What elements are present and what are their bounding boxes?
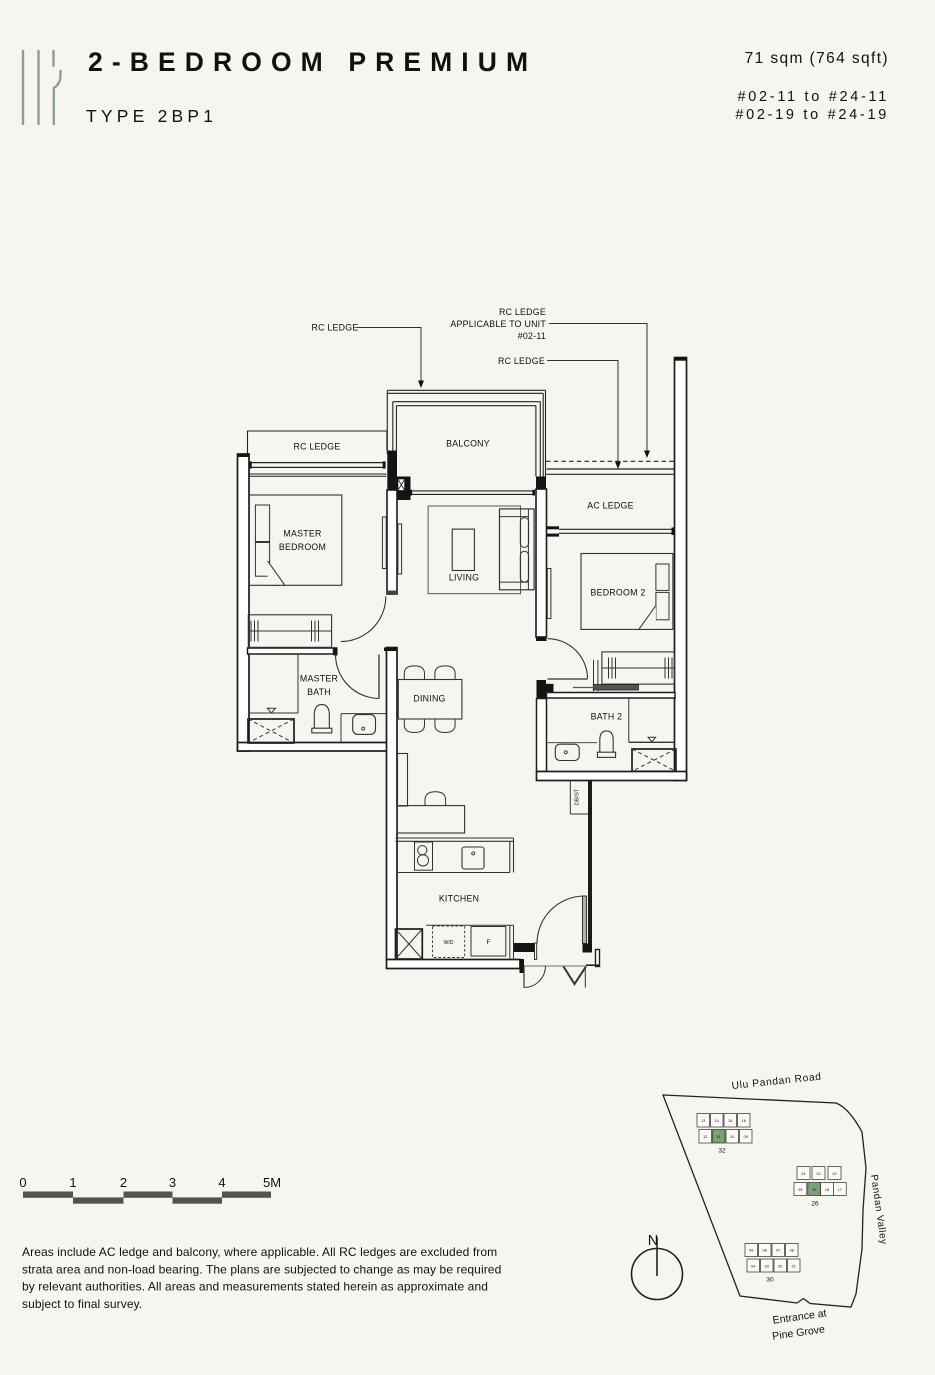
svg-text:15: 15 xyxy=(728,1119,732,1123)
svg-text:strata area and non-load beari: strata area and non-load bearing. The pl… xyxy=(22,1262,501,1276)
svg-text:subject to final survey.: subject to final survey. xyxy=(22,1297,142,1311)
svg-text:07: 07 xyxy=(776,1249,780,1253)
svg-text:APPLICABLE TO UNIT: APPLICABLE TO UNIT xyxy=(450,319,546,329)
svg-text:26: 26 xyxy=(811,1201,819,1208)
svg-text:16: 16 xyxy=(742,1119,746,1123)
svg-text:#02-11: #02-11 xyxy=(518,331,546,341)
svg-text:BATH 2: BATH 2 xyxy=(591,712,623,722)
svg-text:MASTER: MASTER xyxy=(300,674,338,684)
svg-text:19: 19 xyxy=(812,1188,816,1192)
svg-text:BATH: BATH xyxy=(307,687,331,697)
svg-text:BEDROOM 2: BEDROOM 2 xyxy=(590,588,645,598)
svg-text:03: 03 xyxy=(765,1265,769,1269)
svg-text:32: 32 xyxy=(718,1148,726,1155)
svg-text:DINING: DINING xyxy=(413,694,445,704)
svg-text:06: 06 xyxy=(763,1249,767,1253)
svg-text:by relevant authorities. All a: by relevant authorities. All areas and m… xyxy=(22,1280,488,1294)
svg-text:11: 11 xyxy=(717,1135,721,1139)
svg-text:AC LEDGE: AC LEDGE xyxy=(587,501,634,511)
svg-text:RC LEDGE: RC LEDGE xyxy=(294,442,341,452)
svg-text:0: 0 xyxy=(19,1175,26,1190)
svg-text:08: 08 xyxy=(790,1249,794,1253)
svg-text:RC LEDGE: RC LEDGE xyxy=(498,356,545,366)
svg-text:30: 30 xyxy=(766,1277,774,1284)
svg-text:25: 25 xyxy=(798,1188,802,1192)
svg-text:2-BEDROOM PREMIUM: 2-BEDROOM PREMIUM xyxy=(88,47,537,77)
svg-text:5M: 5M xyxy=(263,1175,281,1190)
svg-text:TYPE 2BP1: TYPE 2BP1 xyxy=(86,106,217,126)
svg-text:1: 1 xyxy=(69,1175,76,1190)
svg-text:Areas include AC ledge and bal: Areas include AC ledge and balcony, wher… xyxy=(22,1245,497,1259)
svg-text:14: 14 xyxy=(715,1119,719,1123)
svg-text:21: 21 xyxy=(801,1172,805,1176)
svg-text:4: 4 xyxy=(218,1175,225,1190)
svg-text:MASTER: MASTER xyxy=(283,529,321,539)
svg-text:RC LEDGE: RC LEDGE xyxy=(312,323,359,333)
svg-text:09: 09 xyxy=(744,1135,748,1139)
svg-text:DB/ST: DB/ST xyxy=(575,788,581,805)
svg-text:18: 18 xyxy=(825,1188,829,1192)
svg-text:02: 02 xyxy=(778,1265,782,1269)
svg-text:71 sqm (764 sqft): 71 sqm (764 sqft) xyxy=(745,50,889,67)
svg-text:3: 3 xyxy=(169,1175,176,1190)
svg-text:BEDROOM: BEDROOM xyxy=(279,542,326,552)
svg-text:04: 04 xyxy=(751,1265,755,1269)
svg-text:LIVING: LIVING xyxy=(449,573,479,583)
svg-text:KITCHEN: KITCHEN xyxy=(439,894,479,904)
svg-text:17: 17 xyxy=(838,1188,842,1192)
svg-text:10: 10 xyxy=(730,1135,734,1139)
svg-text:12: 12 xyxy=(703,1135,707,1139)
svg-text:20: 20 xyxy=(832,1172,836,1176)
svg-text:F: F xyxy=(487,939,491,946)
svg-text:13: 13 xyxy=(701,1119,705,1123)
svg-text:#02-19 to #24-19: #02-19 to #24-19 xyxy=(735,107,889,123)
svg-text:BALCONY: BALCONY xyxy=(446,439,490,449)
svg-text:#02-11 to #24-11: #02-11 to #24-11 xyxy=(738,89,890,105)
svg-text:2: 2 xyxy=(120,1175,127,1190)
svg-text:22: 22 xyxy=(816,1172,820,1176)
svg-text:W/D: W/D xyxy=(443,940,453,946)
svg-text:N: N xyxy=(648,1233,658,1249)
svg-text:RC LEDGE: RC LEDGE xyxy=(499,307,546,317)
svg-text:01: 01 xyxy=(792,1265,796,1269)
svg-text:05: 05 xyxy=(749,1249,753,1253)
